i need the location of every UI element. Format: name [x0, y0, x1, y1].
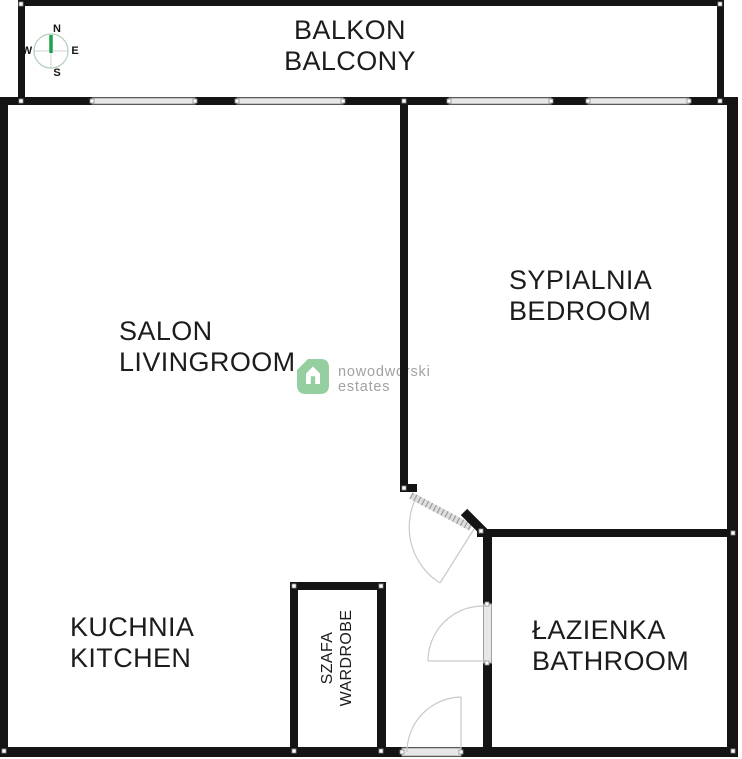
room-label-bathroom: ŁAZIENKA BATHROOM: [532, 615, 689, 677]
compass-label-west: W: [22, 45, 32, 57]
room-name-pl: ŁAZIENKA: [532, 615, 689, 646]
room-name-en: BALCONY: [180, 46, 520, 77]
room-label-kitchen: KUCHNIA KITCHEN: [70, 612, 194, 674]
room-name-en: BATHROOM: [532, 646, 689, 677]
room-name-pl: SALON: [119, 316, 296, 347]
room-name-pl: BALKON: [180, 15, 520, 46]
room-label-bedroom: SYPIALNIA BEDROOM: [509, 265, 652, 327]
room-name-pl: KUCHNIA: [70, 612, 194, 643]
room-name-en: WARDROBE: [337, 610, 356, 707]
room-name-pl: SYPIALNIA: [509, 265, 652, 296]
room-name-en: BEDROOM: [509, 296, 652, 327]
compass-label-south: S: [53, 67, 60, 79]
compass-label-east: E: [71, 45, 78, 57]
compass-label-north: N: [53, 23, 61, 35]
room-label-livingroom: SALON LIVINGROOM: [119, 316, 296, 378]
room-name-en: KITCHEN: [70, 643, 194, 674]
floorplan: nowodworski estates: [0, 0, 742, 759]
room-name-en: LIVINGROOM: [119, 347, 296, 378]
room-label-wardrobe: SZAFA WARDROBE: [318, 610, 356, 707]
text-layer: N W E S BALKON BALCONY SALON LIVINGROOM …: [0, 0, 742, 759]
room-name-pl: SZAFA: [318, 610, 337, 707]
room-label-balcony: BALKON BALCONY: [180, 15, 520, 77]
